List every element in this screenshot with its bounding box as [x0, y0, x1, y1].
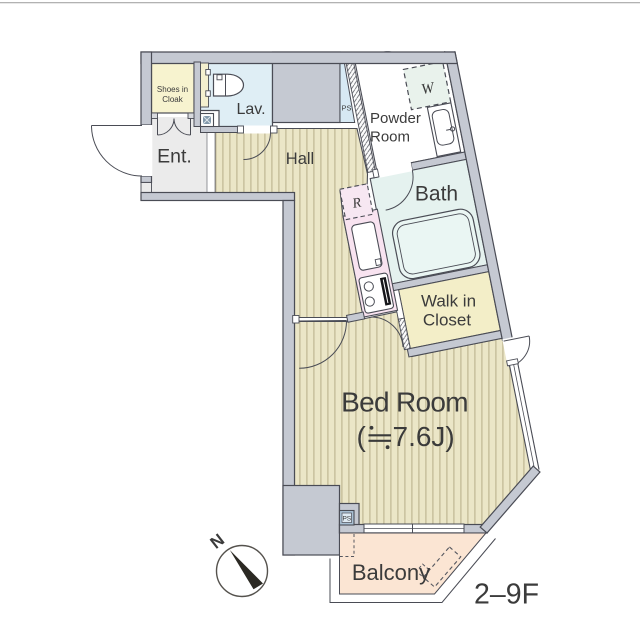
svg-text:Room: Room	[370, 129, 410, 146]
svg-text:Walk in: Walk in	[421, 292, 476, 311]
svg-text:7.6J): 7.6J)	[393, 421, 455, 452]
svg-text:Hall: Hall	[286, 150, 314, 168]
svg-text:Powder: Powder	[370, 110, 421, 127]
svg-text:Shoes in: Shoes in	[157, 85, 188, 94]
svg-text:Balcony: Balcony	[352, 560, 430, 585]
svg-text:PS: PS	[341, 104, 351, 113]
svg-text:Bed Room: Bed Room	[341, 387, 468, 418]
svg-text:(: (	[357, 421, 367, 452]
svg-text:PS: PS	[342, 516, 351, 523]
svg-text:2–9F: 2–9F	[474, 579, 539, 611]
svg-text:Ent.: Ent.	[157, 146, 192, 168]
svg-text:Closet: Closet	[423, 311, 471, 330]
svg-text:Lav.: Lav.	[236, 101, 265, 118]
svg-text:Bath: Bath	[415, 183, 458, 206]
svg-text:Cloak: Cloak	[162, 95, 183, 104]
